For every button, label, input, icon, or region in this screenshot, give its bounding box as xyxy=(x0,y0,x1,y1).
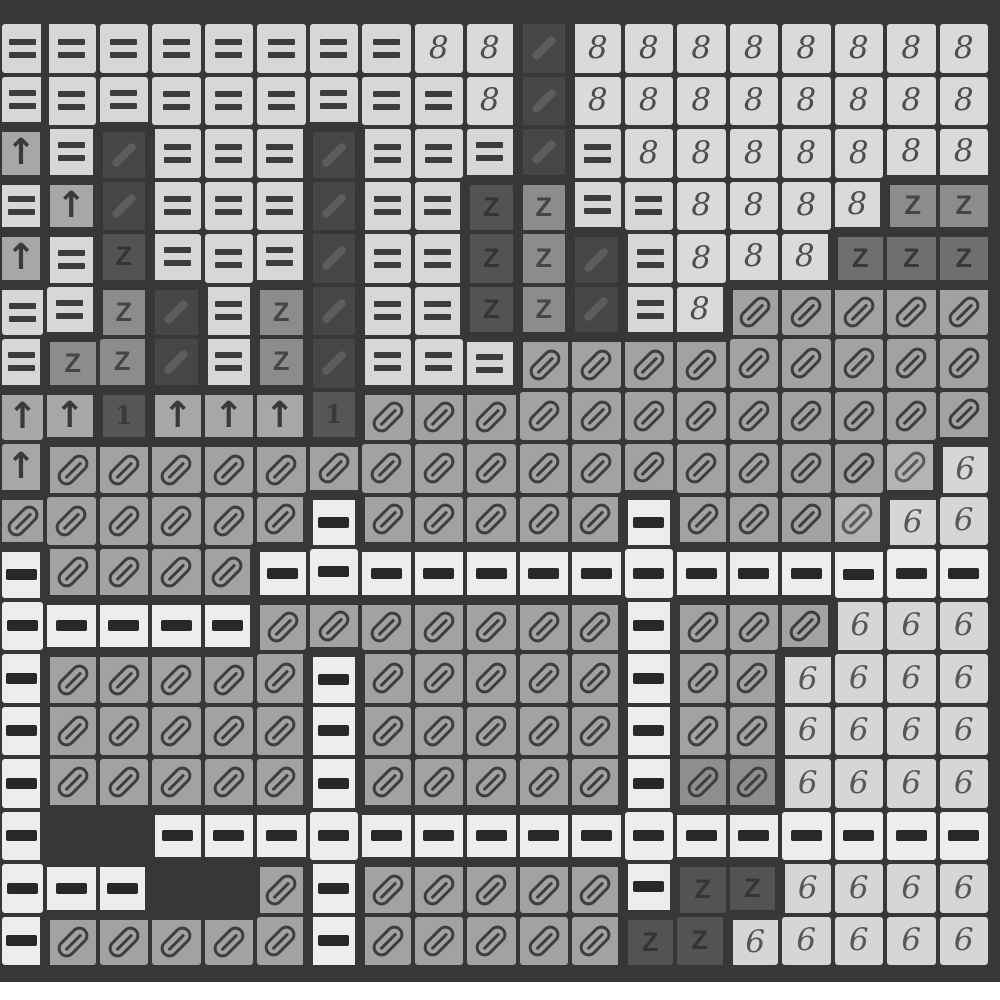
grid-cell-slashed-oval-symbol[interactable] xyxy=(465,495,518,548)
grid-cell-arrow-up-symbol[interactable]: ↑ xyxy=(0,442,45,495)
grid-cell-twill-slash-symbol[interactable] xyxy=(98,127,151,180)
grid-cell-slashed-oval-symbol[interactable] xyxy=(885,337,938,390)
grid-cell-slashed-oval-symbol[interactable] xyxy=(413,495,466,548)
grid-cell-road-dash-symbol[interactable] xyxy=(0,705,45,758)
grid-cell-slashed-oval-symbol[interactable] xyxy=(98,547,151,600)
grid-cell-road-dash-symbol[interactable] xyxy=(623,810,676,863)
grid-cell-slashed-oval-symbol[interactable] xyxy=(203,442,256,495)
grid-cell-equals-symbol[interactable] xyxy=(360,232,413,285)
grid-cell-slashed-oval-symbol[interactable] xyxy=(570,652,623,705)
grid-cell-road-dash-symbol[interactable] xyxy=(465,810,518,863)
grid-cell-equals-symbol[interactable] xyxy=(98,22,151,75)
grid-cell-z-symbol-dim[interactable]: Z xyxy=(833,232,886,285)
grid-cell-slashed-oval-symbol[interactable] xyxy=(203,495,256,548)
grid-cell-slashed-oval-symbol[interactable] xyxy=(203,547,256,600)
grid-cell-slashed-oval-symbol[interactable] xyxy=(570,390,623,443)
grid-cell-six-symbol[interactable]: 6 xyxy=(885,862,938,915)
grid-cell-eight-symbol[interactable]: 8 xyxy=(675,285,728,338)
grid-cell-slashed-oval-symbol[interactable] xyxy=(465,757,518,810)
grid-cell-slashed-oval-light-symbol[interactable] xyxy=(833,495,886,548)
grid-cell-road-dash-symbol[interactable] xyxy=(833,547,886,600)
grid-cell-z-symbol-dark[interactable]: Z xyxy=(675,915,728,968)
grid-cell-road-dash-symbol[interactable] xyxy=(728,810,781,863)
grid-cell-slashed-oval-symbol[interactable] xyxy=(570,862,623,915)
grid-cell-six-symbol[interactable]: 6 xyxy=(885,495,938,548)
grid-cell-six-symbol[interactable]: 6 xyxy=(833,757,886,810)
grid-cell-eight-symbol[interactable]: 8 xyxy=(938,75,991,128)
grid-cell-eight-symbol[interactable]: 8 xyxy=(465,22,518,75)
grid-cell-twill-slash-symbol[interactable] xyxy=(150,337,203,390)
grid-cell-road-dash-symbol[interactable] xyxy=(45,862,98,915)
grid-cell-slashed-oval-symbol[interactable] xyxy=(203,705,256,758)
grid-cell-equals-symbol[interactable] xyxy=(203,285,256,338)
grid-cell-slashed-oval-symbol[interactable] xyxy=(150,757,203,810)
grid-cell-equals-symbol[interactable] xyxy=(0,180,45,233)
grid-cell-arrow-up-symbol[interactable]: ↑ xyxy=(0,127,45,180)
grid-cell-road-dash-symbol[interactable] xyxy=(0,547,45,600)
grid-cell-slashed-oval-symbol[interactable] xyxy=(833,285,886,338)
grid-cell-road-dash-symbol[interactable] xyxy=(255,547,308,600)
grid-cell-slashed-oval-symbol[interactable] xyxy=(675,442,728,495)
grid-cell-z-symbol-dark[interactable]: Z xyxy=(98,232,151,285)
grid-cell-six-symbol[interactable]: 6 xyxy=(780,757,833,810)
grid-cell-eight-symbol[interactable]: 8 xyxy=(675,232,728,285)
grid-cell-slashed-oval-symbol[interactable] xyxy=(518,705,571,758)
grid-cell-slashed-oval-symbol[interactable] xyxy=(675,600,728,653)
grid-cell-equals-symbol[interactable] xyxy=(413,285,466,338)
grid-cell-slashed-oval-symbol[interactable] xyxy=(98,495,151,548)
grid-cell-eight-symbol[interactable]: 8 xyxy=(728,22,781,75)
grid-cell-slashed-oval-symbol[interactable] xyxy=(465,862,518,915)
grid-cell-road-dash-symbol[interactable] xyxy=(45,600,98,653)
grid-cell-z-symbol[interactable]: Z xyxy=(255,285,308,338)
grid-cell-slashed-oval-symbol[interactable] xyxy=(308,442,361,495)
grid-cell-equals-symbol[interactable] xyxy=(203,75,256,128)
grid-cell-slashed-oval-symbol[interactable] xyxy=(728,390,781,443)
grid-cell-road-dash-symbol[interactable] xyxy=(570,547,623,600)
grid-cell-six-symbol[interactable]: 6 xyxy=(833,652,886,705)
grid-cell-slashed-oval-symbol[interactable] xyxy=(465,390,518,443)
grid-cell-equals-symbol[interactable] xyxy=(360,285,413,338)
grid-cell-road-dash-symbol[interactable] xyxy=(780,810,833,863)
grid-cell-equals-symbol[interactable] xyxy=(255,180,308,233)
grid-cell-eight-symbol[interactable]: 8 xyxy=(833,127,886,180)
grid-cell-equals-symbol[interactable] xyxy=(413,180,466,233)
grid-cell-slashed-oval-dim-symbol[interactable] xyxy=(675,757,728,810)
grid-cell-equals-symbol[interactable] xyxy=(203,22,256,75)
grid-cell-road-dash-symbol[interactable] xyxy=(360,547,413,600)
grid-cell-six-symbol[interactable]: 6 xyxy=(938,442,991,495)
grid-cell-z-symbol[interactable]: Z xyxy=(98,285,151,338)
grid-cell-z-symbol-dark[interactable]: Z xyxy=(728,862,781,915)
grid-cell-slashed-oval-symbol[interactable] xyxy=(465,600,518,653)
grid-cell-eight-symbol[interactable]: 8 xyxy=(780,180,833,233)
grid-cell-six-symbol[interactable]: 6 xyxy=(938,495,991,548)
grid-cell-slashed-oval-symbol[interactable] xyxy=(255,495,308,548)
grid-cell-equals-symbol[interactable] xyxy=(0,285,45,338)
grid-cell-slashed-oval-symbol[interactable] xyxy=(780,390,833,443)
grid-cell-eight-symbol[interactable]: 8 xyxy=(885,22,938,75)
grid-cell-six-symbol[interactable]: 6 xyxy=(885,915,938,968)
grid-cell-equals-symbol[interactable] xyxy=(570,180,623,233)
grid-cell-slashed-oval-symbol[interactable] xyxy=(518,915,571,968)
grid-cell-road-dash-symbol[interactable] xyxy=(465,547,518,600)
grid-cell-slashed-oval-symbol[interactable] xyxy=(833,337,886,390)
grid-cell-twill-slash-symbol[interactable] xyxy=(518,127,571,180)
grid-cell-road-dash-symbol[interactable] xyxy=(623,547,676,600)
grid-cell-arrow-up-symbol[interactable]: ↑ xyxy=(255,390,308,443)
grid-cell-road-dash-symbol[interactable] xyxy=(780,547,833,600)
grid-cell-eight-symbol[interactable]: 8 xyxy=(833,22,886,75)
grid-cell-road-dash-symbol[interactable] xyxy=(0,600,45,653)
grid-cell-slashed-oval-symbol[interactable] xyxy=(780,337,833,390)
grid-cell-twill-slash-symbol[interactable] xyxy=(150,285,203,338)
grid-cell-z-symbol-dark[interactable]: Z xyxy=(465,232,518,285)
grid-cell-slashed-oval-symbol[interactable] xyxy=(150,705,203,758)
grid-cell-equals-symbol[interactable] xyxy=(360,127,413,180)
grid-cell-slashed-oval-symbol[interactable] xyxy=(518,862,571,915)
grid-cell-equals-symbol[interactable] xyxy=(623,285,676,338)
grid-cell-twill-slash-symbol[interactable] xyxy=(308,285,361,338)
grid-cell-slashed-oval-symbol[interactable] xyxy=(203,915,256,968)
grid-cell-equals-symbol[interactable] xyxy=(465,337,518,390)
grid-cell-slashed-oval-symbol[interactable] xyxy=(833,390,886,443)
grid-cell-equals-symbol[interactable] xyxy=(360,180,413,233)
grid-cell-road-dash-symbol[interactable] xyxy=(308,495,361,548)
grid-cell-road-dash-symbol[interactable] xyxy=(885,547,938,600)
grid-cell-slashed-oval-symbol[interactable] xyxy=(885,285,938,338)
grid-cell-equals-symbol[interactable] xyxy=(255,232,308,285)
grid-cell-six-symbol[interactable]: 6 xyxy=(780,705,833,758)
grid-cell-twill-slash-symbol[interactable] xyxy=(570,285,623,338)
grid-cell-equals-symbol[interactable] xyxy=(150,180,203,233)
grid-cell-slashed-oval-symbol[interactable] xyxy=(360,652,413,705)
grid-cell-void-cell[interactable] xyxy=(203,862,256,915)
grid-cell-slashed-oval-symbol[interactable] xyxy=(728,705,781,758)
grid-cell-slashed-oval-symbol[interactable] xyxy=(255,757,308,810)
grid-cell-road-dash-symbol[interactable] xyxy=(0,652,45,705)
grid-cell-slashed-oval-symbol[interactable] xyxy=(518,390,571,443)
grid-cell-slashed-oval-symbol[interactable] xyxy=(413,390,466,443)
grid-cell-arrow-up-symbol[interactable]: ↑ xyxy=(150,390,203,443)
grid-cell-road-dash-symbol[interactable] xyxy=(518,810,571,863)
grid-cell-equals-symbol[interactable] xyxy=(0,22,45,75)
grid-cell-slashed-oval-symbol[interactable] xyxy=(465,705,518,758)
grid-cell-road-dash-symbol[interactable] xyxy=(203,600,256,653)
grid-cell-slashed-oval-symbol[interactable] xyxy=(728,495,781,548)
grid-cell-z-symbol[interactable]: Z xyxy=(885,180,938,233)
grid-cell-eight-symbol[interactable]: 8 xyxy=(728,75,781,128)
grid-cell-slashed-oval-symbol[interactable] xyxy=(360,600,413,653)
grid-cell-road-dash-symbol[interactable] xyxy=(623,705,676,758)
grid-cell-eight-symbol[interactable]: 8 xyxy=(938,127,991,180)
grid-cell-eight-symbol[interactable]: 8 xyxy=(570,75,623,128)
grid-cell-slashed-oval-symbol[interactable] xyxy=(308,600,361,653)
grid-cell-road-dash-symbol[interactable] xyxy=(150,600,203,653)
grid-cell-eight-symbol[interactable]: 8 xyxy=(780,75,833,128)
grid-cell-equals-symbol[interactable] xyxy=(413,337,466,390)
grid-cell-equals-symbol[interactable] xyxy=(360,22,413,75)
grid-cell-six-symbol[interactable]: 6 xyxy=(833,600,886,653)
grid-cell-six-symbol[interactable]: 6 xyxy=(938,757,991,810)
grid-cell-equals-symbol[interactable] xyxy=(203,127,256,180)
grid-cell-arrow-up-symbol[interactable]: ↑ xyxy=(203,390,256,443)
grid-cell-slashed-oval-symbol[interactable] xyxy=(413,862,466,915)
grid-cell-six-symbol[interactable]: 6 xyxy=(938,600,991,653)
grid-cell-slashed-oval-symbol[interactable] xyxy=(150,652,203,705)
grid-cell-road-dash-symbol[interactable] xyxy=(938,547,991,600)
grid-cell-twill-slash-symbol[interactable] xyxy=(570,232,623,285)
grid-cell-eight-symbol[interactable]: 8 xyxy=(780,232,833,285)
grid-cell-road-dash-symbol[interactable] xyxy=(885,810,938,863)
grid-cell-eight-symbol[interactable]: 8 xyxy=(623,127,676,180)
grid-cell-slashed-oval-symbol[interactable] xyxy=(570,337,623,390)
grid-cell-eight-symbol[interactable]: 8 xyxy=(570,22,623,75)
grid-cell-slashed-oval-symbol[interactable] xyxy=(255,442,308,495)
grid-cell-slashed-oval-symbol[interactable] xyxy=(98,757,151,810)
grid-cell-road-dash-symbol[interactable] xyxy=(0,757,45,810)
grid-cell-slashed-oval-symbol[interactable] xyxy=(518,495,571,548)
grid-cell-equals-symbol[interactable] xyxy=(0,337,45,390)
grid-cell-eight-symbol[interactable]: 8 xyxy=(728,232,781,285)
grid-cell-six-symbol[interactable]: 6 xyxy=(938,915,991,968)
grid-cell-slashed-oval-symbol[interactable] xyxy=(150,495,203,548)
grid-cell-road-dash-symbol[interactable] xyxy=(833,810,886,863)
grid-cell-six-symbol[interactable]: 6 xyxy=(938,652,991,705)
grid-cell-equals-symbol[interactable] xyxy=(360,75,413,128)
grid-cell-z-symbol-dark[interactable]: Z xyxy=(675,862,728,915)
grid-cell-road-dash-symbol[interactable] xyxy=(0,810,45,863)
grid-cell-slashed-oval-symbol[interactable] xyxy=(98,652,151,705)
grid-cell-equals-symbol[interactable] xyxy=(45,75,98,128)
grid-cell-slashed-oval-symbol[interactable] xyxy=(780,600,833,653)
grid-cell-slashed-oval-symbol[interactable] xyxy=(360,757,413,810)
grid-cell-slashed-oval-symbol[interactable] xyxy=(780,442,833,495)
grid-cell-equals-symbol[interactable] xyxy=(360,337,413,390)
grid-cell-slashed-oval-symbol[interactable] xyxy=(938,390,991,443)
grid-cell-slashed-oval-symbol[interactable] xyxy=(360,495,413,548)
grid-cell-six-symbol[interactable]: 6 xyxy=(780,915,833,968)
grid-cell-slashed-oval-symbol[interactable] xyxy=(45,757,98,810)
grid-cell-slashed-oval-symbol[interactable] xyxy=(360,915,413,968)
grid-cell-z-symbol[interactable]: Z xyxy=(518,180,571,233)
grid-cell-six-symbol[interactable]: 6 xyxy=(938,705,991,758)
grid-cell-slashed-oval-symbol[interactable] xyxy=(780,285,833,338)
grid-cell-equals-symbol[interactable] xyxy=(308,75,361,128)
grid-cell-slashed-oval-symbol[interactable] xyxy=(360,862,413,915)
grid-cell-six-symbol[interactable]: 6 xyxy=(780,862,833,915)
grid-cell-slashed-oval-symbol[interactable] xyxy=(518,600,571,653)
grid-cell-slashed-oval-symbol[interactable] xyxy=(150,442,203,495)
grid-cell-z-symbol-dark[interactable]: Z xyxy=(623,915,676,968)
grid-cell-slashed-oval-symbol[interactable] xyxy=(728,337,781,390)
grid-cell-equals-symbol[interactable] xyxy=(98,75,151,128)
grid-cell-road-dash-symbol[interactable] xyxy=(623,652,676,705)
grid-cell-six-symbol[interactable]: 6 xyxy=(885,705,938,758)
grid-cell-eight-symbol[interactable]: 8 xyxy=(885,127,938,180)
grid-cell-slashed-oval-symbol[interactable] xyxy=(465,915,518,968)
grid-cell-road-dash-symbol[interactable] xyxy=(0,915,45,968)
grid-cell-slashed-oval-symbol[interactable] xyxy=(675,495,728,548)
grid-cell-equals-symbol[interactable] xyxy=(45,127,98,180)
grid-cell-slashed-oval-symbol[interactable] xyxy=(675,337,728,390)
grid-cell-slashed-oval-symbol[interactable] xyxy=(413,652,466,705)
grid-cell-slashed-oval-symbol[interactable] xyxy=(570,915,623,968)
grid-cell-slashed-oval-symbol[interactable] xyxy=(45,652,98,705)
grid-cell-road-dash-symbol[interactable] xyxy=(98,600,151,653)
grid-cell-slashed-oval-symbol[interactable] xyxy=(413,915,466,968)
grid-cell-slashed-oval-symbol[interactable] xyxy=(413,600,466,653)
grid-cell-road-dash-symbol[interactable] xyxy=(0,862,45,915)
grid-cell-eight-symbol[interactable]: 8 xyxy=(465,75,518,128)
grid-cell-slashed-oval-dim-symbol[interactable] xyxy=(728,757,781,810)
grid-cell-road-dash-symbol[interactable] xyxy=(518,547,571,600)
grid-cell-slashed-oval-light-symbol[interactable] xyxy=(885,442,938,495)
grid-cell-road-dash-symbol[interactable] xyxy=(308,652,361,705)
grid-cell-road-dash-symbol[interactable] xyxy=(675,810,728,863)
grid-cell-slashed-oval-symbol[interactable] xyxy=(623,337,676,390)
grid-cell-road-dash-symbol[interactable] xyxy=(308,705,361,758)
grid-cell-slashed-oval-symbol[interactable] xyxy=(728,285,781,338)
grid-cell-road-dash-symbol[interactable] xyxy=(570,810,623,863)
grid-cell-road-dash-symbol[interactable] xyxy=(623,600,676,653)
grid-cell-slashed-oval-symbol[interactable] xyxy=(570,600,623,653)
grid-cell-road-dash-symbol[interactable] xyxy=(938,810,991,863)
grid-cell-eight-symbol[interactable]: 8 xyxy=(675,180,728,233)
grid-cell-void-cell[interactable] xyxy=(150,862,203,915)
grid-cell-equals-symbol[interactable] xyxy=(203,180,256,233)
grid-cell-equals-symbol[interactable] xyxy=(623,232,676,285)
grid-cell-slashed-oval-symbol[interactable] xyxy=(413,757,466,810)
grid-cell-six-symbol[interactable]: 6 xyxy=(833,915,886,968)
grid-cell-eight-symbol[interactable]: 8 xyxy=(623,22,676,75)
grid-cell-slashed-oval-symbol[interactable] xyxy=(150,915,203,968)
grid-cell-twill-slash-symbol[interactable] xyxy=(308,232,361,285)
grid-cell-six-symbol[interactable]: 6 xyxy=(833,862,886,915)
grid-cell-six-symbol[interactable]: 6 xyxy=(885,600,938,653)
grid-cell-slashed-oval-symbol[interactable] xyxy=(570,495,623,548)
grid-cell-road-dash-symbol[interactable] xyxy=(308,915,361,968)
grid-cell-six-symbol[interactable]: 6 xyxy=(938,862,991,915)
grid-cell-slashed-oval-symbol[interactable] xyxy=(255,862,308,915)
grid-cell-slashed-oval-symbol[interactable] xyxy=(150,547,203,600)
grid-cell-eight-symbol[interactable]: 8 xyxy=(728,127,781,180)
grid-cell-six-symbol[interactable]: 6 xyxy=(728,915,781,968)
grid-cell-slashed-oval-symbol[interactable] xyxy=(413,442,466,495)
grid-cell-slashed-oval-symbol[interactable] xyxy=(675,652,728,705)
grid-cell-equals-symbol[interactable] xyxy=(150,75,203,128)
grid-cell-z-symbol[interactable]: Z xyxy=(255,337,308,390)
grid-cell-road-dash-symbol[interactable] xyxy=(623,757,676,810)
grid-cell-twill-slash-symbol[interactable] xyxy=(518,75,571,128)
grid-cell-z-symbol[interactable]: Z xyxy=(98,337,151,390)
grid-cell-equals-symbol[interactable] xyxy=(570,127,623,180)
grid-cell-one-symbol[interactable]: 1 xyxy=(98,390,151,443)
grid-cell-z-symbol-dim[interactable]: Z xyxy=(938,232,991,285)
grid-cell-slashed-oval-symbol[interactable] xyxy=(675,705,728,758)
grid-cell-slashed-oval-symbol[interactable] xyxy=(360,390,413,443)
grid-cell-road-dash-symbol[interactable] xyxy=(203,810,256,863)
grid-cell-six-symbol[interactable]: 6 xyxy=(833,705,886,758)
grid-cell-arrow-up-symbol[interactable]: ↑ xyxy=(0,390,45,443)
grid-cell-slashed-oval-symbol[interactable] xyxy=(413,705,466,758)
grid-cell-eight-symbol[interactable]: 8 xyxy=(728,180,781,233)
grid-cell-slashed-oval-symbol[interactable] xyxy=(728,652,781,705)
grid-cell-equals-symbol[interactable] xyxy=(623,180,676,233)
grid-cell-six-symbol[interactable]: 6 xyxy=(885,757,938,810)
grid-cell-road-dash-symbol[interactable] xyxy=(308,757,361,810)
grid-cell-z-symbol-dim[interactable]: Z xyxy=(885,232,938,285)
grid-cell-equals-symbol[interactable] xyxy=(150,232,203,285)
grid-cell-equals-symbol[interactable] xyxy=(0,75,45,128)
grid-cell-twill-slash-symbol[interactable] xyxy=(308,337,361,390)
grid-cell-slashed-oval-symbol[interactable] xyxy=(465,652,518,705)
grid-cell-slashed-oval-symbol[interactable] xyxy=(623,442,676,495)
grid-cell-slashed-oval-symbol[interactable] xyxy=(938,337,991,390)
grid-cell-equals-symbol[interactable] xyxy=(45,232,98,285)
grid-cell-six-symbol[interactable]: 6 xyxy=(780,652,833,705)
grid-cell-slashed-oval-symbol[interactable] xyxy=(728,600,781,653)
grid-cell-equals-symbol[interactable] xyxy=(308,22,361,75)
grid-cell-equals-symbol[interactable] xyxy=(45,22,98,75)
grid-cell-eight-symbol[interactable]: 8 xyxy=(938,22,991,75)
grid-cell-slashed-oval-symbol[interactable] xyxy=(98,705,151,758)
grid-cell-slashed-oval-symbol[interactable] xyxy=(45,705,98,758)
grid-cell-slashed-oval-symbol[interactable] xyxy=(0,495,45,548)
grid-cell-z-symbol[interactable]: Z xyxy=(518,232,571,285)
grid-cell-slashed-oval-symbol[interactable] xyxy=(833,442,886,495)
pattern-grid[interactable]: 8888888888888888888↑8888888↑ZZ8888ZZ↑ZZZ… xyxy=(0,22,990,967)
grid-cell-equals-symbol[interactable] xyxy=(413,127,466,180)
grid-cell-eight-symbol[interactable]: 8 xyxy=(623,75,676,128)
grid-cell-road-dash-symbol[interactable] xyxy=(308,810,361,863)
grid-cell-z-symbol[interactable]: Z xyxy=(45,337,98,390)
grid-cell-arrow-up-symbol[interactable]: ↑ xyxy=(0,232,45,285)
grid-cell-road-dash-symbol[interactable] xyxy=(255,810,308,863)
grid-cell-slashed-oval-symbol[interactable] xyxy=(518,337,571,390)
grid-cell-eight-symbol[interactable]: 8 xyxy=(780,127,833,180)
grid-cell-twill-slash-symbol[interactable] xyxy=(308,180,361,233)
grid-cell-road-dash-symbol[interactable] xyxy=(98,862,151,915)
grid-cell-slashed-oval-symbol[interactable] xyxy=(518,652,571,705)
grid-cell-eight-symbol[interactable]: 8 xyxy=(833,180,886,233)
grid-cell-slashed-oval-symbol[interactable] xyxy=(255,705,308,758)
grid-cell-arrow-up-symbol[interactable]: ↑ xyxy=(45,180,98,233)
grid-cell-eight-symbol[interactable]: 8 xyxy=(675,22,728,75)
grid-cell-slashed-oval-symbol[interactable] xyxy=(518,442,571,495)
grid-cell-twill-slash-symbol[interactable] xyxy=(518,22,571,75)
grid-cell-twill-slash-symbol[interactable] xyxy=(98,180,151,233)
grid-cell-equals-symbol[interactable] xyxy=(413,232,466,285)
grid-cell-z-symbol-dark[interactable]: Z xyxy=(465,180,518,233)
grid-cell-slashed-oval-symbol[interactable] xyxy=(518,757,571,810)
grid-cell-equals-symbol[interactable] xyxy=(255,75,308,128)
grid-cell-eight-symbol[interactable]: 8 xyxy=(675,75,728,128)
grid-cell-slashed-oval-symbol[interactable] xyxy=(623,390,676,443)
grid-cell-z-symbol-dark[interactable]: Z xyxy=(465,285,518,338)
grid-cell-void-cell[interactable] xyxy=(98,810,151,863)
grid-cell-slashed-oval-symbol[interactable] xyxy=(255,915,308,968)
grid-cell-slashed-oval-symbol[interactable] xyxy=(360,705,413,758)
grid-cell-road-dash-symbol[interactable] xyxy=(413,810,466,863)
grid-cell-slashed-oval-symbol[interactable] xyxy=(255,600,308,653)
grid-cell-equals-symbol[interactable] xyxy=(465,127,518,180)
grid-cell-equals-symbol[interactable] xyxy=(203,337,256,390)
grid-cell-slashed-oval-symbol[interactable] xyxy=(885,390,938,443)
grid-cell-eight-symbol[interactable]: 8 xyxy=(413,22,466,75)
grid-cell-slashed-oval-symbol[interactable] xyxy=(255,652,308,705)
grid-cell-equals-symbol[interactable] xyxy=(255,22,308,75)
